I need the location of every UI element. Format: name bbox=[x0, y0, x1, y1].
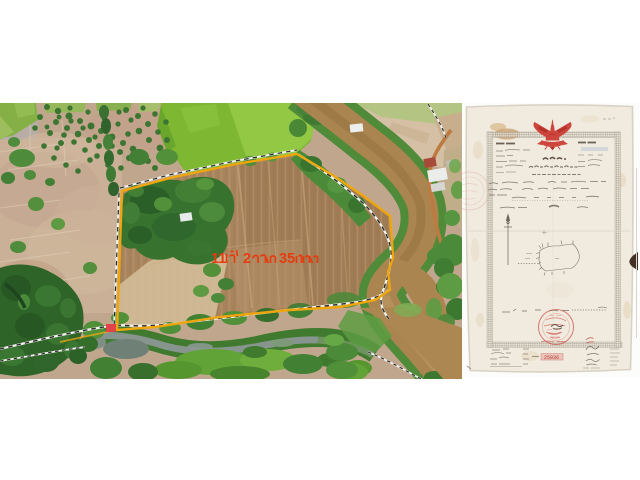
svg-text:25036: 25036 bbox=[544, 355, 559, 361]
svg-text:11: 11 bbox=[211, 251, 226, 267]
svg-text:2: 2 bbox=[243, 251, 251, 267]
svg-text:35: 35 bbox=[279, 251, 295, 267]
